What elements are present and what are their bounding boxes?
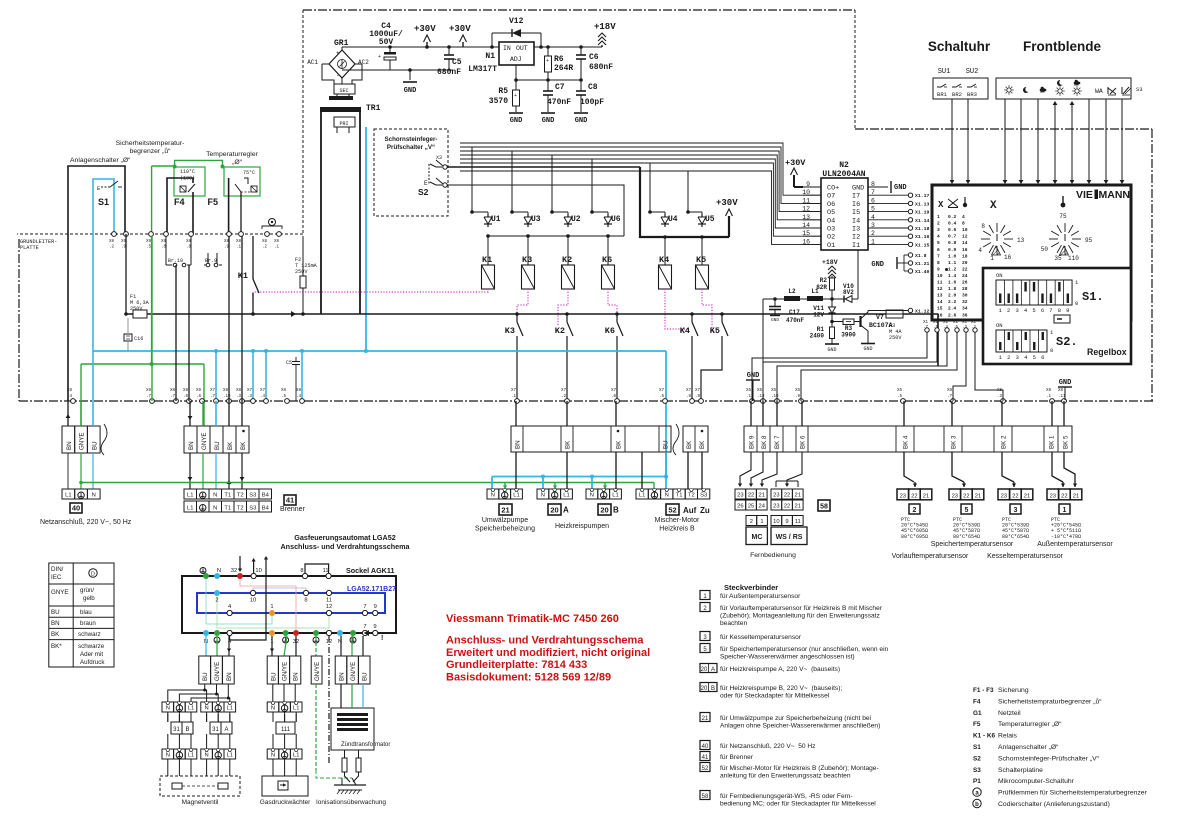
svg-text:.7: .7	[947, 395, 953, 399]
svg-text:BU: BU	[91, 441, 98, 450]
svg-text:41: 41	[702, 755, 709, 761]
svg-text:X1: X1	[933, 321, 939, 325]
svg-text:CO+: CO+	[827, 185, 839, 193]
svg-text:Erweitert und modifiziert, nic: Erweitert und modifiziert, nicht origina…	[446, 647, 650, 659]
svg-text:25: 25	[748, 504, 754, 510]
svg-text:X1.19: X1.19	[915, 210, 930, 216]
svg-text:gelb: gelb	[83, 595, 95, 602]
svg-text:N2: N2	[839, 161, 849, 170]
svg-text:0.8: 0.8	[948, 240, 957, 246]
svg-text:N: N	[217, 568, 221, 574]
svg-text:N: N	[491, 493, 495, 499]
svg-text:BU: BU	[362, 672, 369, 681]
svg-text:X7: X7	[260, 389, 266, 393]
svg-text:T2: T2	[688, 493, 695, 499]
svg-text:für Speichertemperatursensor (: für Speichertemperatursensor (nur anschl…	[720, 646, 889, 653]
svg-text:30: 30	[962, 293, 968, 299]
svg-text:1.4: 1.4	[948, 273, 957, 279]
svg-text:T1: T1	[224, 506, 231, 512]
svg-text:.4: .4	[260, 395, 266, 399]
svg-text:20: 20	[550, 506, 558, 515]
svg-text:+30V: +30V	[716, 198, 738, 208]
svg-text:VIE: VIE	[1076, 189, 1093, 201]
svg-text:13: 13	[937, 293, 943, 299]
svg-text:Grundleiterplatte: 7814 433: Grundleiterplatte: 7814 433	[446, 659, 587, 671]
svg-text:2: 2	[1007, 307, 1010, 314]
svg-text:I4: I4	[852, 217, 860, 225]
svg-text:Br.10: Br.10	[168, 258, 183, 264]
svg-text:X8: X8	[223, 389, 229, 393]
svg-text:.4: .4	[67, 395, 73, 399]
svg-text:X: X	[938, 200, 944, 210]
svg-text:K6: K6	[605, 326, 615, 336]
svg-text:2: 2	[937, 221, 940, 227]
svg-text:BU: BU	[202, 672, 209, 681]
svg-text:X8: X8	[109, 240, 115, 244]
svg-text:Steckverbinder: Steckverbinder	[724, 583, 778, 592]
svg-text:F5: F5	[207, 197, 218, 207]
svg-text:12: 12	[962, 234, 968, 240]
svg-text:13: 13	[802, 214, 810, 221]
svg-text:6: 6	[937, 247, 940, 253]
svg-text:GNYE: GNYE	[201, 432, 208, 450]
svg-text:L1: L1	[187, 506, 193, 512]
svg-text:X1: X1	[962, 321, 968, 325]
svg-text:.8: .8	[686, 395, 692, 399]
svg-text:S2: S2	[418, 187, 429, 197]
svg-text:.7: .7	[923, 326, 929, 330]
svg-text:21: 21	[923, 493, 929, 499]
svg-text:BK: BK	[240, 441, 247, 450]
svg-text:21: 21	[795, 493, 801, 499]
svg-text:22: 22	[784, 504, 790, 510]
svg-text:X1.18: X1.18	[915, 226, 930, 232]
svg-text:3: 3	[1016, 354, 1019, 361]
svg-text:ON: ON	[996, 272, 1003, 279]
svg-text:F5: F5	[973, 721, 981, 728]
svg-text:A: A	[224, 727, 228, 733]
svg-text:35: 35	[1054, 255, 1062, 262]
svg-text:GN/YE: GN/YE	[314, 662, 321, 681]
svg-text:BK 7: BK 7	[774, 435, 781, 449]
svg-text:Aufdruck: Aufdruck	[80, 659, 105, 666]
svg-text:13: 13	[1017, 237, 1025, 244]
svg-text:21: 21	[501, 506, 509, 515]
svg-text:I5: I5	[852, 209, 860, 217]
svg-text:GN/YE: GN/YE	[214, 662, 221, 681]
svg-text:X1: X1	[971, 321, 977, 325]
svg-text:Sicherheitstemperatur-: Sicherheitstemperatur-	[116, 140, 185, 147]
svg-text:.6: .6	[611, 395, 617, 399]
svg-text:BR2: BR2	[952, 91, 962, 98]
svg-text:Netzteil: Netzteil	[998, 710, 1021, 717]
svg-text:21: 21	[702, 716, 709, 722]
svg-text:braun: braun	[80, 620, 96, 627]
svg-text:21: 21	[975, 493, 981, 499]
svg-text:GND: GND	[575, 117, 588, 125]
svg-text:blau: blau	[80, 609, 92, 616]
svg-text:X8: X8	[236, 389, 242, 393]
svg-text:Mischer-Motor: Mischer-Motor	[655, 517, 700, 524]
svg-text:„Ø“: „Ø“	[232, 159, 243, 166]
svg-text:2.2: 2.2	[948, 299, 957, 305]
svg-text:12: 12	[937, 286, 943, 292]
svg-text:23: 23	[952, 493, 958, 499]
svg-text:BR3: BR3	[967, 91, 977, 98]
svg-text:31: 31	[173, 727, 180, 733]
svg-text:S1: S1	[973, 744, 981, 751]
svg-text:.6: .6	[183, 395, 189, 399]
svg-text:beachten: beachten	[720, 620, 747, 627]
svg-text:U1: U1	[491, 215, 501, 224]
svg-text:2: 2	[215, 598, 218, 604]
svg-text:8: 8	[304, 598, 307, 604]
svg-text:GND: GND	[747, 372, 760, 380]
svg-text:Zu: Zu	[700, 506, 710, 515]
svg-text:14: 14	[802, 222, 810, 229]
svg-text:Magnetventil: Magnetventil	[182, 799, 219, 806]
svg-text:1.1: 1.1	[948, 260, 957, 266]
svg-text:K2: K2	[555, 326, 565, 336]
svg-text:X1.8: X1.8	[915, 253, 927, 259]
svg-text:F1 - F3: F1 - F3	[973, 687, 994, 694]
svg-text:C8: C8	[588, 83, 598, 92]
svg-text:BK 9: BK 9	[749, 435, 756, 449]
svg-text:16: 16	[937, 312, 943, 318]
svg-text:0.6: 0.6	[948, 227, 957, 233]
svg-text:11: 11	[795, 519, 801, 525]
svg-text:S3: S3	[249, 493, 256, 499]
svg-text:für Kesseltemperatursensor: für Kesseltemperatursensor	[720, 634, 802, 641]
svg-text:5: 5	[1032, 307, 1035, 314]
svg-text:Netzanschluß, 220 V~, 50 Hz: Netzanschluß, 220 V~, 50 Hz	[40, 519, 132, 526]
svg-text:BK: BK	[686, 440, 693, 449]
svg-text:für Mischer-Motor für Heizkrei: für Mischer-Motor für Heizkreis B (Zubeh…	[720, 765, 879, 772]
svg-text:.5: .5	[659, 395, 665, 399]
svg-text:N: N	[665, 493, 669, 499]
svg-text:BR1: BR1	[937, 91, 948, 98]
svg-text:Auf: Auf	[683, 506, 697, 515]
svg-text:F4: F4	[174, 197, 185, 207]
svg-text:.10: .10	[771, 395, 779, 399]
svg-text:+: +	[546, 58, 549, 64]
svg-text:8: 8	[1058, 307, 1061, 314]
svg-text:B4: B4	[262, 506, 270, 512]
svg-text:Heizkreispumpen: Heizkreispumpen	[555, 523, 609, 530]
svg-text:oder für Steckadapter für Mitt: oder für Steckadapter für Mittelkessel	[720, 693, 830, 700]
svg-text:U2: U2	[571, 215, 581, 224]
svg-text:3570: 3570	[489, 97, 508, 106]
svg-text:0.9: 0.9	[948, 247, 957, 253]
svg-text:LM317T: LM317T	[468, 65, 497, 74]
svg-text:Prüfschalter „V“: Prüfschalter „V“	[387, 144, 435, 151]
svg-text:schwarz: schwarz	[78, 631, 101, 638]
svg-text:Sicherung: Sicherung	[998, 687, 1029, 694]
svg-text:.2: .2	[109, 246, 115, 250]
svg-text:Regelbox: Regelbox	[1087, 347, 1127, 357]
svg-text:7: 7	[363, 604, 366, 610]
svg-text:WA: WA	[1095, 88, 1103, 95]
svg-text:X5: X5	[746, 389, 752, 393]
svg-text:.7: .7	[146, 395, 152, 399]
svg-text:BK: BK	[699, 440, 706, 449]
svg-text:für Vorlauftemperatursensor fü: für Vorlauftemperatursensor für Heizkrei…	[720, 605, 883, 612]
svg-text:10: 10	[250, 598, 256, 604]
svg-text:8: 8	[937, 260, 940, 266]
svg-text:X1.17: X1.17	[915, 193, 930, 199]
svg-text:.5: .5	[897, 395, 903, 399]
svg-text:Schaltuhr: Schaltuhr	[928, 39, 991, 54]
svg-text:100pF: 100pF	[580, 98, 604, 107]
svg-text:0.4: 0.4	[948, 221, 957, 227]
svg-text:.4: .4	[296, 395, 302, 399]
svg-text:SU1: SU1	[938, 68, 951, 76]
svg-text:14: 14	[937, 299, 943, 305]
svg-text:BN: BN	[51, 620, 60, 627]
svg-text:LGA52.171B27: LGA52.171B27	[347, 586, 396, 593]
svg-text:D: D	[91, 572, 95, 578]
svg-text:.3: .3	[247, 395, 253, 399]
svg-text:Ionisationsüberwachung: Ionisationsüberwachung	[316, 799, 386, 806]
svg-text:GND: GND	[510, 117, 523, 125]
svg-text:16: 16	[1004, 254, 1012, 261]
svg-text:Schalterplatine: Schalterplatine	[998, 767, 1043, 774]
svg-text:16: 16	[962, 247, 968, 253]
svg-text:X5: X5	[897, 389, 903, 393]
svg-text:.9: .9	[795, 395, 801, 399]
svg-text:S2.: S2.	[1056, 335, 1078, 349]
svg-text:15: 15	[802, 230, 810, 237]
svg-text:9: 9	[1066, 307, 1069, 314]
svg-text:O5: O5	[827, 209, 835, 217]
svg-text:26: 26	[962, 280, 968, 286]
svg-text:BK: BK	[616, 440, 623, 449]
svg-text:14: 14	[962, 240, 968, 246]
svg-text:470nF: 470nF	[786, 317, 804, 324]
svg-text:BK 6: BK 6	[800, 435, 807, 449]
svg-text:anleitung für den Erweiterungs: anleitung für den Erweiterungssatz beach…	[720, 773, 851, 780]
svg-text:BK 4: BK 4	[903, 435, 910, 449]
svg-text:80°C*695Ω: 80°C*695Ω	[901, 534, 928, 540]
svg-text:Kesseltemperatursensor: Kesseltemperatursensor	[987, 553, 1064, 560]
svg-text:X: X	[990, 200, 997, 212]
svg-text:C6: C6	[589, 53, 599, 62]
svg-text:S2: S2	[973, 755, 981, 762]
svg-text:X8: X8	[1046, 389, 1052, 393]
svg-text:2.4: 2.4	[948, 306, 957, 312]
svg-text:22: 22	[748, 493, 754, 499]
svg-text:X8: X8	[1058, 389, 1064, 393]
svg-text:BK: BK	[51, 631, 60, 638]
svg-text:N: N	[166, 706, 170, 712]
svg-text:MC: MC	[752, 534, 763, 541]
svg-text:.1: .1	[1046, 395, 1052, 399]
svg-text:GNYE: GNYE	[51, 589, 69, 596]
svg-text:41: 41	[286, 496, 294, 505]
svg-text:I3: I3	[852, 226, 860, 234]
svg-text:Anlagenschalter „Ø“: Anlagenschalter „Ø“	[70, 157, 131, 164]
svg-text:26: 26	[737, 504, 743, 510]
svg-text:A: A	[711, 667, 715, 673]
svg-text:b: b	[975, 802, 979, 808]
svg-text:BK 3: BK 3	[951, 435, 958, 449]
svg-text:9: 9	[785, 519, 788, 525]
svg-text:.3: .3	[997, 395, 1003, 399]
svg-text:I1: I1	[852, 242, 860, 250]
svg-text:5: 5	[937, 240, 940, 246]
svg-text:11: 11	[326, 598, 332, 604]
svg-text:GND: GND	[1059, 379, 1072, 387]
svg-text:O3: O3	[827, 226, 835, 234]
svg-text:110°C: 110°C	[180, 169, 195, 175]
svg-text:4: 4	[978, 247, 982, 254]
svg-text:L2: L2	[788, 288, 796, 295]
svg-text:E: E	[424, 180, 428, 187]
svg-text:U4: U4	[668, 215, 678, 224]
svg-text:.2: .2	[561, 395, 567, 399]
svg-text:8: 8	[981, 223, 985, 230]
svg-text:L1: L1	[811, 288, 819, 295]
svg-text:X8: X8	[262, 240, 268, 244]
svg-text:PLATTE: PLATTE	[20, 245, 39, 251]
svg-text:58: 58	[702, 794, 709, 800]
svg-text:BN: BN	[339, 672, 346, 681]
svg-text:12: 12	[802, 206, 810, 213]
svg-text:Codierschalter (Anlieferungszu: Codierschalter (Anlieferungszustand)	[998, 801, 1110, 808]
svg-text:6: 6	[1041, 307, 1044, 314]
svg-text:.5: .5	[146, 246, 152, 250]
svg-text:95: 95	[1085, 237, 1093, 244]
svg-text:MANN: MANN	[1099, 189, 1131, 201]
svg-text:R5: R5	[498, 87, 508, 96]
svg-text:75: 75	[1059, 213, 1067, 220]
svg-text:.7: .7	[210, 395, 216, 399]
svg-text:N: N	[92, 493, 96, 499]
svg-text:Zündtransformator: Zündtransformator	[341, 742, 390, 748]
svg-text:X7: X7	[695, 389, 701, 393]
svg-text:S1.: S1.	[1082, 290, 1104, 304]
svg-text:GND: GND	[894, 184, 907, 192]
svg-text:PRI: PRI	[339, 121, 348, 127]
svg-text:I2: I2	[852, 234, 860, 242]
svg-text:X7: X7	[686, 389, 692, 393]
svg-text:20: 20	[701, 686, 708, 692]
svg-text:B: B	[613, 506, 619, 515]
svg-text:X1: X1	[953, 321, 959, 325]
svg-text:X7: X7	[561, 389, 567, 393]
svg-text:V12: V12	[509, 17, 524, 26]
svg-text:X7: X7	[210, 389, 216, 393]
svg-text:schwarze: schwarze	[78, 643, 105, 650]
svg-text:X8: X8	[183, 389, 189, 393]
svg-text:Relais: Relais	[998, 733, 1017, 740]
svg-text:11: 11	[802, 197, 810, 204]
svg-text:BN: BN	[293, 672, 300, 681]
svg-text:50: 50	[1041, 246, 1049, 253]
svg-text:X8: X8	[236, 240, 242, 244]
svg-text:L1: L1	[65, 493, 71, 499]
svg-text:4: 4	[937, 234, 940, 240]
svg-text:X1.15: X1.15	[915, 242, 930, 248]
svg-text:S3: S3	[249, 506, 256, 512]
svg-text:T2: T2	[237, 493, 244, 499]
svg-text:O2: O2	[827, 234, 835, 242]
svg-text:I6: I6	[852, 201, 860, 209]
svg-text:U5: U5	[705, 215, 715, 224]
svg-text:K5: K5	[696, 255, 706, 265]
svg-text:12V: 12V	[813, 312, 824, 319]
svg-text:Anschluss- und Verdrahtungssch: Anschluss- und Verdrahtungsschema	[446, 635, 644, 647]
svg-text:Gasdruckwächter: Gasdruckwächter	[260, 799, 311, 806]
svg-text:GND: GND	[863, 346, 872, 352]
svg-text:1: 1	[937, 214, 940, 220]
svg-text:22: 22	[784, 493, 790, 499]
svg-text:AC1: AC1	[307, 59, 318, 66]
svg-text:0: 0	[1050, 347, 1053, 354]
svg-text:2: 2	[913, 507, 917, 514]
svg-text:9: 9	[937, 266, 940, 272]
svg-text:Speicherbeheizung: Speicherbeheizung	[475, 526, 535, 533]
svg-text:250V: 250V	[889, 335, 902, 341]
svg-text:X1: X1	[943, 321, 949, 325]
svg-text:N: N	[205, 706, 209, 712]
svg-text:X3: X3	[436, 155, 442, 161]
svg-text:3: 3	[1015, 307, 1018, 314]
svg-text:9: 9	[374, 604, 377, 610]
svg-text:10: 10	[255, 568, 261, 574]
svg-text:80°C*654Ω: 80°C*654Ω	[953, 534, 980, 540]
svg-text:S3: S3	[973, 767, 981, 774]
svg-text:L1: L1	[612, 493, 618, 499]
svg-text:5: 5	[1033, 354, 1036, 361]
svg-text:K1: K1	[482, 255, 492, 265]
svg-text:.5: .5	[953, 326, 959, 330]
svg-text:11: 11	[937, 280, 943, 286]
svg-text:X1.21: X1.21	[915, 261, 930, 267]
svg-text:K6: K6	[602, 255, 612, 265]
svg-text:Speichertemperatursensor: Speichertemperatursensor	[931, 541, 1014, 548]
svg-text:O6: O6	[827, 201, 835, 209]
svg-text:5: 5	[965, 507, 969, 514]
svg-text:S1: S1	[98, 197, 109, 207]
svg-text:32: 32	[962, 299, 968, 305]
svg-text:K2: K2	[562, 255, 572, 265]
svg-text:X5: X5	[795, 389, 801, 393]
svg-text:BN: BN	[226, 672, 233, 681]
svg-text:BU: BU	[270, 672, 277, 681]
svg-text:Temperaturregler „Ø“: Temperaturregler „Ø“	[998, 721, 1062, 728]
svg-text:N: N	[271, 753, 275, 759]
svg-text:T1: T1	[676, 493, 683, 499]
svg-text:1.2: 1.2	[948, 266, 957, 272]
svg-text:Schornsteinfeger-: Schornsteinfeger-	[385, 136, 438, 143]
svg-text:7: 7	[363, 624, 366, 630]
svg-text:2.6: 2.6	[948, 312, 957, 318]
svg-text:250V: 250V	[295, 269, 308, 275]
svg-text:X7: X7	[247, 389, 253, 393]
svg-text:L1: L1	[563, 493, 569, 499]
svg-text:18: 18	[962, 253, 968, 259]
svg-text:begrenzer „ů“: begrenzer „ů“	[130, 147, 172, 155]
svg-text:K5: K5	[710, 326, 720, 336]
svg-text:für Netzanschluß, 220 V~ 50 H: für Netzanschluß, 220 V~ 50 Hz	[720, 743, 815, 750]
svg-text:31: 31	[212, 727, 219, 733]
svg-text:I7: I7	[852, 193, 860, 201]
svg-text:T2: T2	[237, 506, 244, 512]
svg-text:BK 8: BK 8	[761, 435, 768, 449]
svg-text:X1.12: X1.12	[915, 309, 930, 315]
svg-text:1: 1	[270, 604, 273, 610]
